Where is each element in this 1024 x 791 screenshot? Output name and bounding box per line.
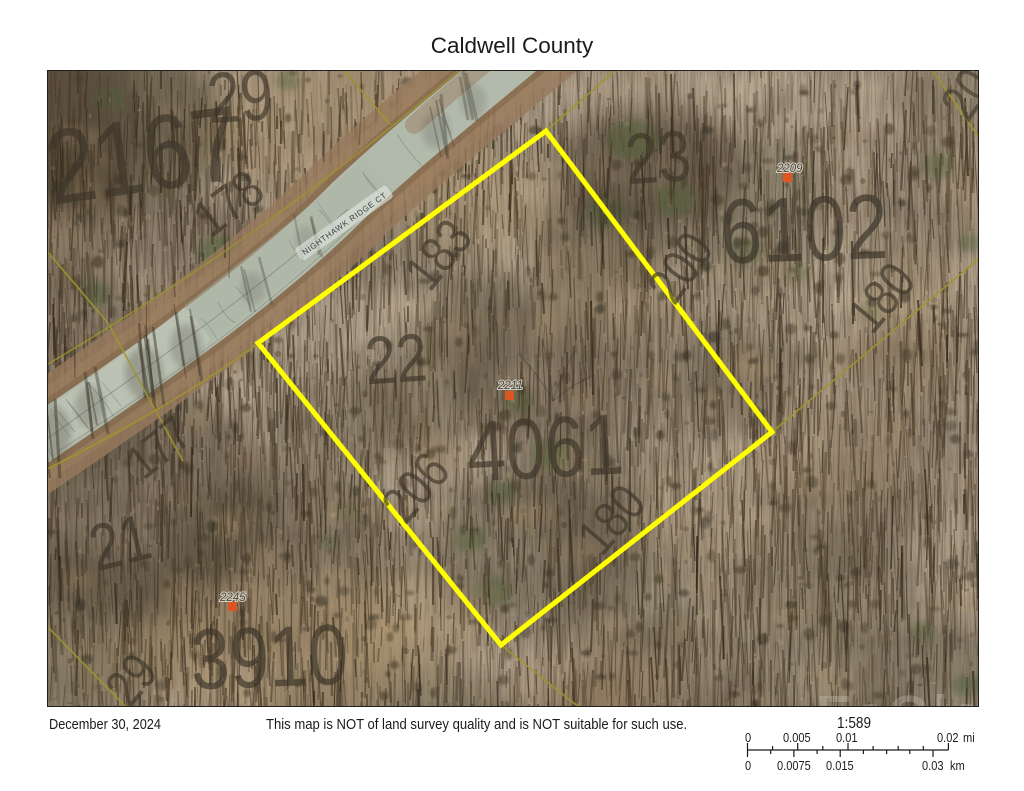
svg-text:4061: 4061 [464, 396, 626, 500]
svg-text:29: 29 [204, 71, 275, 139]
svg-text:22: 22 [362, 320, 429, 400]
svg-text:6102: 6102 [718, 175, 889, 284]
svg-text:23: 23 [622, 114, 693, 199]
svg-text:2211: 2211 [497, 380, 523, 392]
svg-text:EaGle: EaGle [816, 685, 978, 706]
svg-text:3910: 3910 [189, 606, 349, 706]
